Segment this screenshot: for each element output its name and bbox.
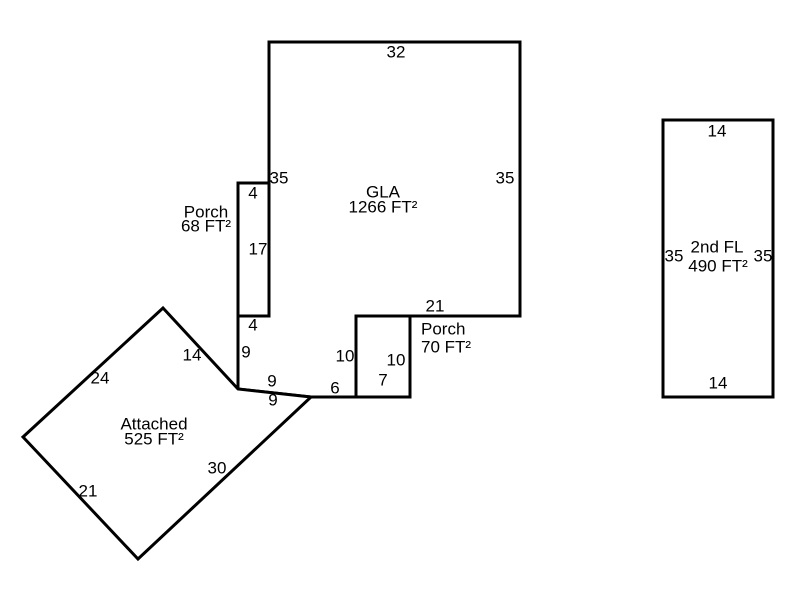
dim-gla-notch-slope: 9 xyxy=(267,372,276,391)
dim-2fl-bottom: 14 xyxy=(709,374,728,393)
dim-attached-slope: 9 xyxy=(268,391,277,410)
dim-porch68-side: 17 xyxy=(249,240,268,259)
dim-porch70-bottom: 7 xyxy=(378,371,387,390)
dim-gla-left: 35 xyxy=(270,169,289,188)
dim-gla-right: 35 xyxy=(496,169,515,188)
dim-porch68-bottom: 4 xyxy=(248,316,257,335)
dim-porch70-right: 10 xyxy=(387,351,406,370)
dim-2fl-top: 14 xyxy=(708,122,727,141)
dim-gla-notch-left: 9 xyxy=(241,343,250,362)
dim-porch70-left: 10 xyxy=(336,347,355,366)
dim-attached-southeast: 30 xyxy=(208,459,227,478)
dim-attached-northwest: 24 xyxy=(91,369,110,388)
dim-porch68-top: 4 xyxy=(248,184,257,203)
floor-plan-sketch-page: GLA1266 FT²Porch68 FT²Porch70 FT²Attache… xyxy=(0,0,800,600)
porch-70-label-line1: Porch xyxy=(421,320,465,339)
porch-70-label-line2: 70 FT² xyxy=(421,338,471,357)
floor-plan-svg: GLA1266 FT²Porch68 FT²Porch70 FT²Attache… xyxy=(0,0,800,600)
dim-2fl-left: 35 xyxy=(665,247,684,266)
dim-gla-notch-bottom: 6 xyxy=(330,379,339,398)
porch-68-label-line2: 68 FT² xyxy=(181,217,231,236)
second-floor-label-line2: 490 FT² xyxy=(688,257,748,276)
dim-attached-southwest: 21 xyxy=(79,482,98,501)
dim-2fl-right: 35 xyxy=(754,247,773,266)
gla-label-line2: 1266 FT² xyxy=(349,198,418,217)
dim-gla-bottom: 21 xyxy=(426,297,445,316)
attached-label-line2: 525 FT² xyxy=(124,430,184,449)
dim-gla-top: 32 xyxy=(387,43,406,62)
second-floor-label-line1: 2nd FL xyxy=(691,238,744,257)
dim-attached-northeast: 14 xyxy=(183,346,202,365)
